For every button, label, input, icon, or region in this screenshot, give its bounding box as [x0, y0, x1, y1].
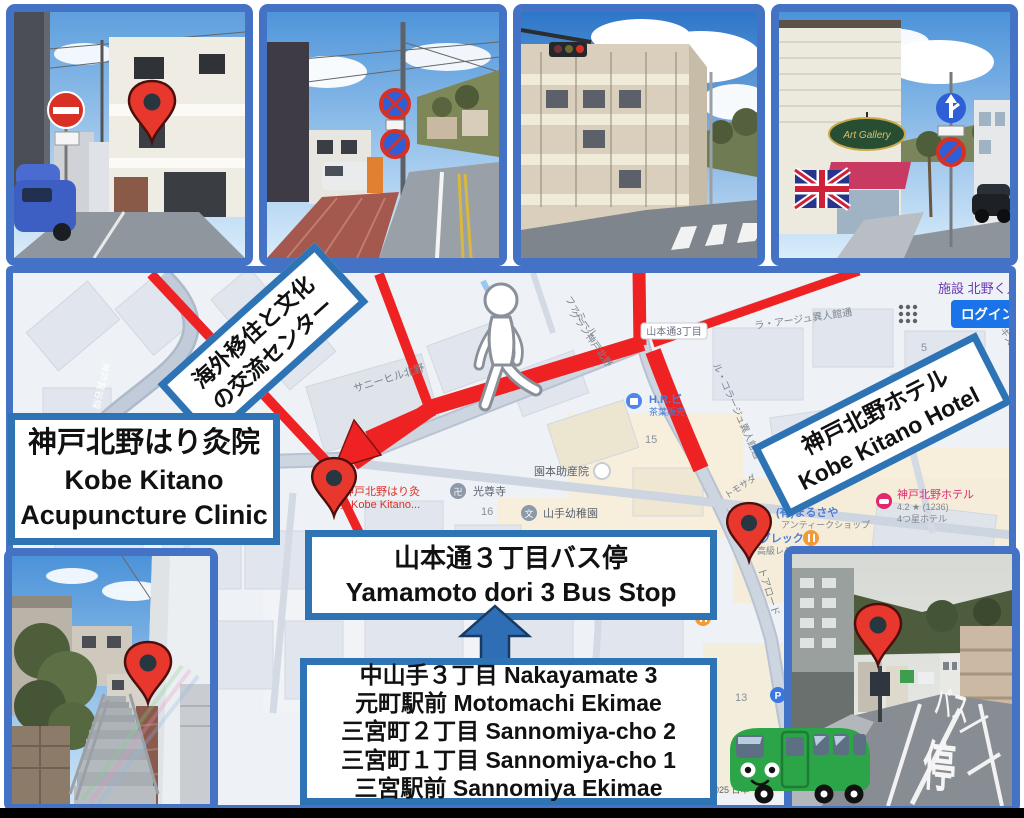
bus-stop-jp: 山本通３丁目バス停	[394, 541, 628, 575]
street-photo-sidewalk	[259, 4, 507, 266]
clinic-name-jp: 神戸北野はり灸院	[28, 424, 260, 462]
street-photo-stairs	[4, 548, 218, 812]
up-arrow-icon	[457, 604, 533, 662]
svg-text:アンティークショップ: アンティークショップ	[781, 520, 870, 530]
svg-text:茶葉販売: 茶葉販売	[649, 406, 685, 417]
svg-text:文: 文	[524, 508, 533, 519]
svg-text:山本通3丁目: 山本通3丁目	[646, 325, 702, 338]
sign-plate	[386, 120, 404, 130]
clinic-name-en1: Kobe Kitano	[65, 463, 224, 499]
street-photo-clinic-front	[6, 4, 253, 266]
bus-stop-item: 三宮駅前 Sannomiya Ekimae	[354, 774, 662, 802]
login-button[interactable]: ログイン	[951, 300, 1009, 328]
bus-stop-item: 中山手３丁目 Nakayamate 3	[360, 661, 658, 689]
svg-text:山手幼稚園: 山手幼稚園	[543, 506, 598, 520]
map-search-text: 施設 北野く入	[938, 281, 1009, 296]
green-bus-illustration	[718, 718, 876, 806]
direction-arrow-sign	[936, 93, 966, 123]
svg-text:ログイン: ログイン	[961, 306, 1009, 322]
svg-text:院 Kobe Kitano...: 院 Kobe Kitano...	[337, 497, 420, 511]
svg-text:H.R.ビ: H.R.ビ	[649, 392, 682, 406]
road-name-sign: 山本通3丁目	[641, 323, 707, 339]
bus-stop-item: 三宮町１丁目 Sannomiya-cho 1	[341, 746, 676, 774]
art-gallery-sign-text: Art Gallery	[842, 130, 891, 141]
svg-text:16: 16	[481, 506, 493, 518]
no-parking-sign	[938, 139, 964, 165]
bottom-black-bar	[0, 808, 1024, 818]
svg-text:光尊寺: 光尊寺	[473, 484, 506, 498]
svg-text:15: 15	[645, 434, 657, 446]
road-paint-stop: 停	[921, 736, 956, 800]
svg-text:神戸北野ホテル: 神戸北野ホテル	[897, 487, 974, 501]
svg-text:卍: 卍	[453, 487, 462, 497]
svg-text:P: P	[775, 691, 782, 702]
apps-grid-icon[interactable]	[899, 305, 917, 323]
no-parking-sign	[382, 131, 408, 157]
bus-stop-item: 元町駅前 Motomachi Ekimae	[355, 689, 662, 717]
svg-text:4.2 ★ (1236): 4.2 ★ (1236)	[897, 502, 949, 512]
svg-text:5: 5	[921, 342, 927, 354]
svg-text:4つ星ホテル: 4つ星ホテル	[897, 514, 947, 524]
union-jack-flag	[795, 170, 849, 208]
clinic-name-en2: Acupuncture Clinic	[20, 498, 268, 534]
svg-text:園本助産院: 園本助産院	[534, 464, 589, 478]
clinic-name-box: 神戸北野はり灸院 Kobe Kitano Acupuncture Clinic	[8, 413, 280, 545]
svg-text:13: 13	[735, 692, 747, 704]
street-photo-apartment	[513, 4, 765, 266]
access-guide-page: Art Gallery	[0, 0, 1024, 818]
street-photo-art-gallery: Art Gallery	[771, 4, 1018, 266]
bus-stops-list-box: 中山手３丁目 Nakayamate 3 元町駅前 Motomachi Ekima…	[300, 658, 717, 805]
bus-stop-item: 三宮町２丁目 Sannomiya-cho 2	[341, 717, 676, 745]
no-stopping-sign	[381, 90, 409, 118]
